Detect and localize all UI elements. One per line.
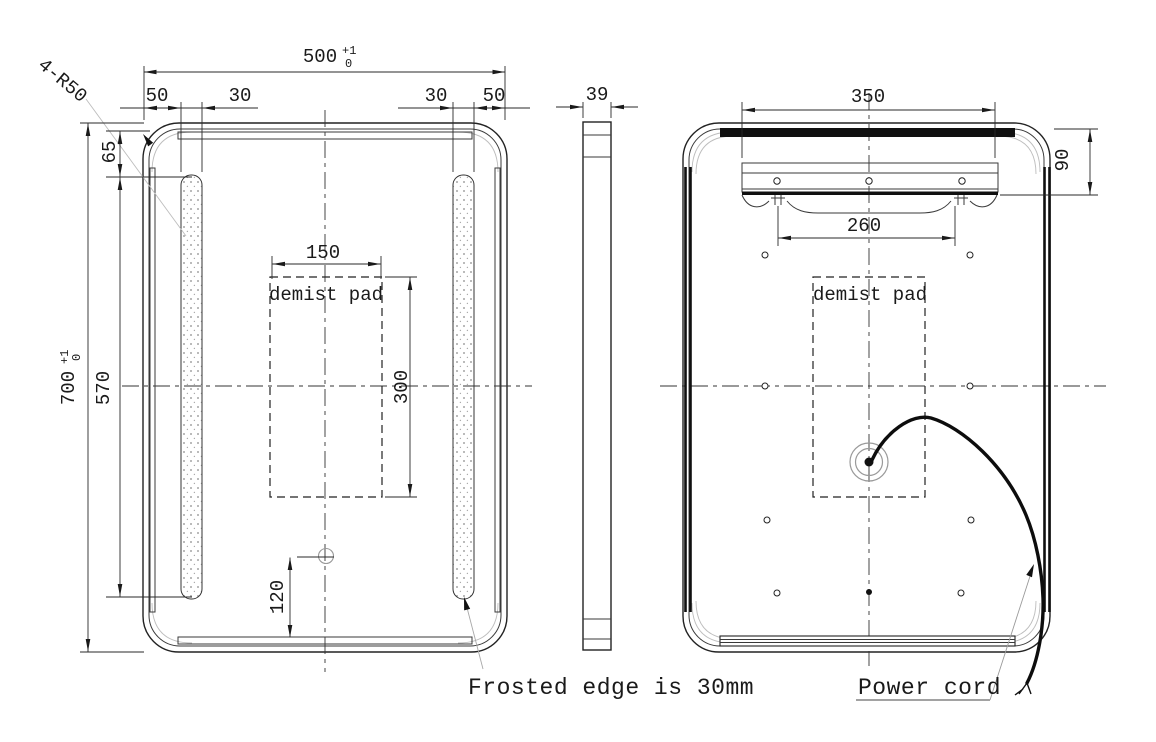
- fixing-dot: [762, 252, 768, 258]
- dim-260-label: 260: [847, 215, 881, 237]
- back-view: demist pad 350 260 90: [660, 86, 1106, 695]
- power-cord-end: [1015, 683, 1031, 695]
- dim-height-700-label: 700: [58, 371, 80, 405]
- fixing-dot: [866, 589, 872, 595]
- dim-width-500-tol-plus: +1: [342, 44, 356, 58]
- corner-radius-label: 4-R50: [33, 54, 91, 108]
- annotations: Frosted edge is 30mm Power cord: [461, 563, 1037, 701]
- corner-radius-leader: [86, 99, 186, 236]
- demist-pad-front: [270, 277, 382, 497]
- dim-65-label: 65: [99, 141, 121, 164]
- fixing-dot: [764, 517, 770, 523]
- front-left-edge-strip: [150, 168, 155, 612]
- fixing-dot: [762, 383, 768, 389]
- fixing-dot: [967, 252, 973, 258]
- dim-height-700-tol-minus: 0: [70, 354, 84, 361]
- demist-pad-back-label: demist pad: [813, 284, 927, 306]
- back-outline-outer: [683, 123, 1050, 652]
- demist-pad-front-label: demist pad: [269, 284, 383, 306]
- bracket-bottom-edge: [742, 192, 998, 196]
- dim-thickness-39: 39: [586, 84, 609, 106]
- power-cord-arrowhead: [1026, 563, 1037, 577]
- bracket-screw-hole: [866, 178, 872, 184]
- dim-30-right: 30: [425, 85, 448, 107]
- dim-50-left: 50: [146, 85, 169, 107]
- dim-90-label: 90: [1052, 149, 1074, 172]
- dim-30-left: 30: [229, 85, 252, 107]
- fixing-dot: [968, 517, 974, 523]
- drawing-sheet: demist pad 500 +1 0 50 30 30 50 4-R50: [0, 0, 1156, 742]
- frosted-edge-note: Frosted edge is 30mm: [468, 675, 754, 701]
- power-cord-note: Power cord: [858, 675, 1001, 701]
- back-corner-arc-tr: [1000, 132, 1040, 172]
- back-bottom-bar: [720, 636, 1015, 646]
- back-top-led-strip: [720, 128, 1015, 137]
- side-outline: [583, 122, 611, 650]
- dim-width-500-label: 500: [303, 46, 337, 68]
- touch-switch: [319, 549, 334, 564]
- front-frosted-strip-left: [181, 175, 202, 599]
- fixing-dot: [774, 590, 780, 596]
- dim-120-label: 120: [267, 580, 289, 614]
- back-outline-inner: [689, 129, 1044, 646]
- dim-height-700-label-group: 700 +1 0: [58, 350, 84, 406]
- dim-150-label: 150: [306, 242, 340, 264]
- side-view: 39: [556, 84, 638, 650]
- dim-350-label: 350: [851, 86, 885, 108]
- dim-570-label: 570: [93, 371, 115, 405]
- mounting-bracket: [742, 163, 998, 213]
- dim-50-right: 50: [483, 85, 506, 107]
- fixing-dot: [967, 383, 973, 389]
- mirror-technical-drawing: demist pad 500 +1 0 50 30 30 50 4-R50: [0, 0, 1156, 742]
- dim-width-500-tol-minus: 0: [345, 57, 352, 71]
- fixing-dot: [958, 590, 964, 596]
- dim-300-label: 300: [391, 370, 413, 404]
- bracket-screw-hole: [774, 178, 780, 184]
- front-frosted-strip-right: [453, 175, 474, 599]
- front-right-edge-strip: [495, 168, 500, 612]
- bracket-screw-hole: [959, 178, 965, 184]
- front-view: demist pad 500 +1 0 50 30 30 50 4-R50: [33, 44, 532, 672]
- frosted-edge-leader: [465, 600, 483, 669]
